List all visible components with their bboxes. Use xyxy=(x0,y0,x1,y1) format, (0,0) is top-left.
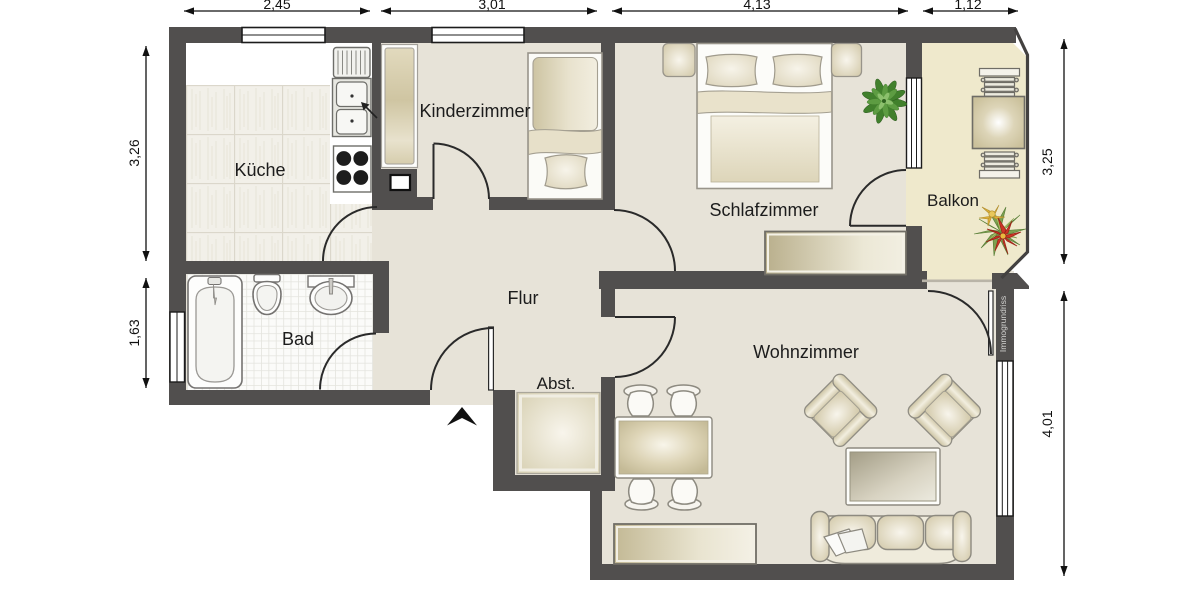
svg-text:Wohnzimmer: Wohnzimmer xyxy=(753,342,859,362)
svg-text:Bad: Bad xyxy=(282,329,314,349)
svg-text:2,45: 2,45 xyxy=(263,0,290,12)
svg-text:3,25: 3,25 xyxy=(1039,148,1055,175)
svg-text:Flur: Flur xyxy=(508,288,539,308)
svg-text:Immogrundriss: Immogrundriss xyxy=(998,296,1008,352)
svg-text:Schlafzimmer: Schlafzimmer xyxy=(709,200,818,220)
svg-text:3,01: 3,01 xyxy=(478,0,505,12)
svg-text:Abst.: Abst. xyxy=(537,374,576,393)
svg-text:4,13: 4,13 xyxy=(743,0,770,12)
svg-text:3,26: 3,26 xyxy=(126,139,142,166)
svg-text:Kinderzimmer: Kinderzimmer xyxy=(419,101,530,121)
svg-text:4,01: 4,01 xyxy=(1039,410,1055,437)
svg-text:Küche: Küche xyxy=(234,160,285,180)
svg-text:1,12: 1,12 xyxy=(954,0,981,12)
svg-text:Balkon: Balkon xyxy=(927,191,979,210)
svg-text:1,63: 1,63 xyxy=(126,319,142,346)
